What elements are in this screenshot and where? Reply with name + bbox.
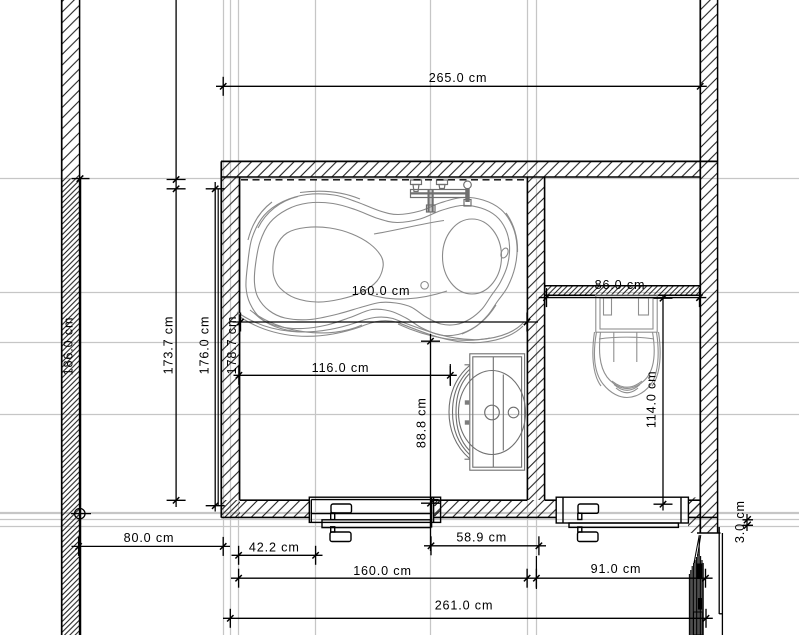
- svg-text:114.0 cm: 114.0 cm: [645, 370, 659, 428]
- svg-text:186.0 cm: 186.0 cm: [62, 317, 76, 376]
- svg-text:3.0 cm: 3.0 cm: [733, 500, 747, 543]
- svg-text:58.9 cm: 58.9 cm: [456, 531, 507, 545]
- svg-text:88.8 cm: 88.8 cm: [415, 397, 429, 448]
- svg-text:42.2 cm: 42.2 cm: [249, 541, 300, 555]
- svg-text:265.0 cm: 265.0 cm: [429, 71, 488, 85]
- svg-text:86.0 cm: 86.0 cm: [595, 278, 646, 292]
- svg-text:176.0 cm: 176.0 cm: [198, 316, 212, 375]
- svg-text:116.0 cm: 116.0 cm: [312, 361, 370, 375]
- svg-text:80.0 cm: 80.0 cm: [124, 531, 175, 545]
- svg-text:173.7 cm: 173.7 cm: [162, 316, 176, 375]
- svg-text:160.0 cm: 160.0 cm: [353, 564, 412, 578]
- svg-text:160.0 cm: 160.0 cm: [352, 284, 411, 298]
- svg-text:91.0 cm: 91.0 cm: [591, 562, 642, 576]
- svg-text:178.7 cm: 178.7 cm: [225, 316, 239, 375]
- svg-text:261.0 cm: 261.0 cm: [435, 599, 494, 613]
